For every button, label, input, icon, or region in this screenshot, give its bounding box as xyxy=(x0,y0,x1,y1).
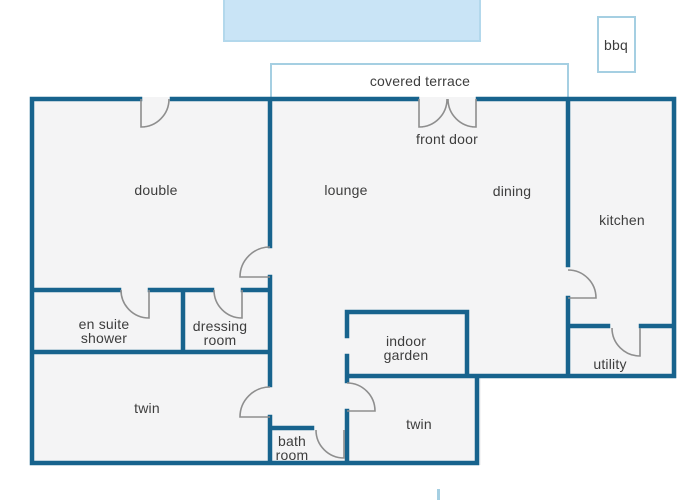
room-label-dining: dining xyxy=(493,184,532,198)
room-label-indoor-garden: indoor garden xyxy=(371,334,441,362)
label-front-door: front door xyxy=(416,132,478,146)
pool-shape xyxy=(224,0,480,41)
room-label-double: double xyxy=(134,183,177,197)
room-label-en-suite-shower: en suite shower xyxy=(59,317,149,345)
room-label-utility: utility xyxy=(593,357,626,371)
label-bbq: bbq xyxy=(604,38,628,52)
room-floor-areas xyxy=(30,97,677,465)
room-label-dressing-room: dressing room xyxy=(180,319,260,347)
room-label-twin-left: twin xyxy=(134,401,160,415)
label-covered-terrace: covered terrace xyxy=(370,74,470,88)
path-tick xyxy=(437,489,440,500)
floor-kitchen-utility xyxy=(566,97,677,378)
room-label-lounge: lounge xyxy=(324,183,367,197)
floorplan-canvas: covered terrace front door bbq double lo… xyxy=(0,0,700,500)
room-label-kitchen: kitchen xyxy=(599,213,645,227)
room-label-bath-room: bath room xyxy=(267,434,317,462)
floorplan-drawing xyxy=(0,0,700,500)
room-label-twin-right: twin xyxy=(406,417,432,431)
